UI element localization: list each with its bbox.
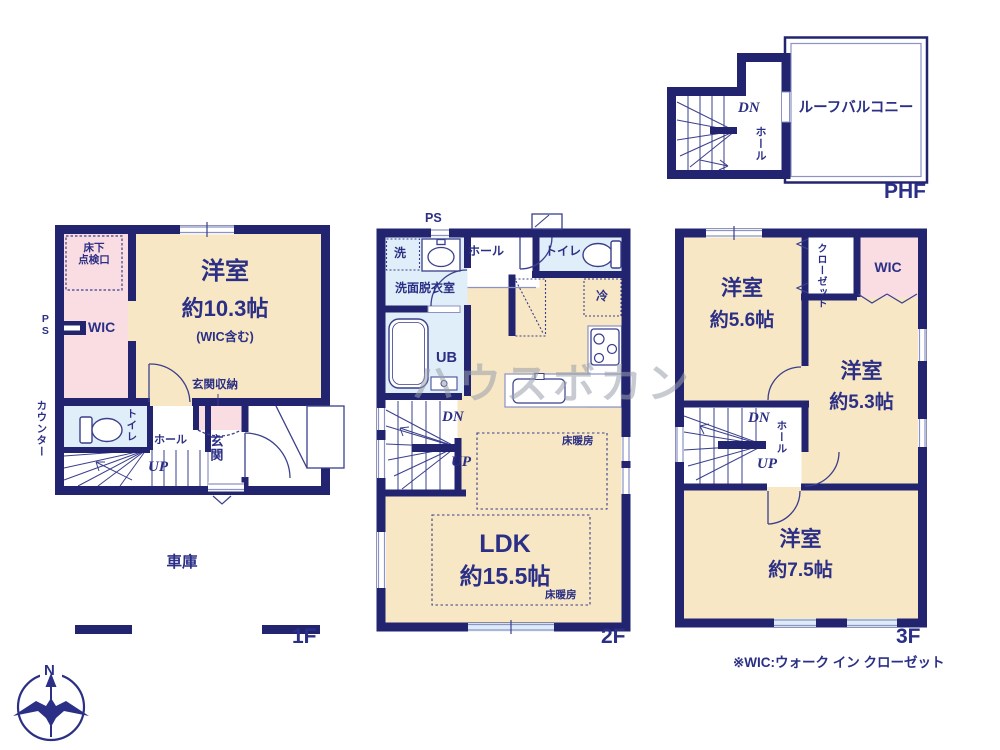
- ub-door: [428, 306, 460, 313]
- f1-bedroom-size: 約10.3帖: [130, 296, 320, 322]
- roof-balcony-label: ルーフバルコニー: [787, 100, 925, 117]
- f1-up-label: UP: [148, 459, 168, 477]
- counter-label: カウンター: [35, 400, 47, 462]
- f2-dn-label: DN: [442, 409, 464, 427]
- entrance-label: 玄関: [208, 434, 223, 484]
- entrance-porch: [307, 406, 344, 468]
- f3-floor-label: 3F: [896, 625, 921, 650]
- f2-hall-label: ホール: [468, 244, 504, 258]
- garage-label: 車庫: [150, 554, 214, 572]
- f1-bedroom-name: 洋室: [130, 258, 320, 286]
- f3-bedroom2-size: 約5.3帖: [805, 392, 918, 414]
- underfloor-hatch-label: 床下 点検口: [68, 242, 120, 267]
- wic-footnote: ※WIC:ウォーク イン クローゼット: [733, 655, 945, 671]
- f3-bedroom3-size: 約7.5帖: [683, 560, 918, 582]
- f1-ps-label: PS: [39, 313, 51, 341]
- floor-heating-label-2: 床暖房: [545, 589, 577, 601]
- f3-dn-label: DN: [748, 410, 770, 428]
- entrance-storage-label: 玄関収納: [192, 379, 238, 393]
- compass-north-label: N: [44, 662, 55, 680]
- floorplan-canvas: DN ホール ルーフバルコニー PHF 床下 点検口 PS WIC 洋室 約10…: [0, 0, 1000, 750]
- phf-floor-label: PHF: [878, 180, 926, 205]
- f1-wic-label: WIC: [88, 319, 115, 336]
- toilet-icon: [80, 417, 122, 443]
- phf-hall-label: ホール: [753, 126, 766, 174]
- f2-toilet-label: トイレ: [545, 244, 581, 258]
- f2-ps-label: PS: [425, 211, 442, 226]
- basin-icon: [422, 239, 460, 271]
- f2-up-label: UP: [451, 454, 471, 472]
- washroom-label: 洗面脱衣室: [382, 281, 468, 295]
- f3-up-label: UP: [757, 456, 777, 474]
- f3-wic-label: WIC: [858, 259, 918, 276]
- phf-dn-label: DN: [738, 100, 760, 118]
- f1-bedroom-note: (WIC含む): [130, 330, 320, 345]
- f1-hall-label: ホール: [154, 434, 187, 447]
- f3-bedroom3-name: 洋室: [683, 528, 918, 553]
- f3-bedroom1-size: 約5.6帖: [685, 310, 799, 332]
- f1-floor-label: 1F: [292, 625, 317, 650]
- fridge-label: 冷: [596, 289, 608, 303]
- f3-bedroom2-name: 洋室: [805, 360, 918, 385]
- closet-label: クローゼット: [813, 243, 828, 279]
- f1-toilet-label: トイレ: [125, 408, 137, 448]
- floor-heating-label-1: 床暖房: [562, 435, 594, 447]
- watermark: ハウスボカン: [412, 350, 694, 411]
- f2-floor-label: 2F: [601, 625, 626, 650]
- f3-bedroom1-name: 洋室: [685, 277, 799, 302]
- ldk-size: 約15.5帖: [400, 563, 610, 590]
- garage-bar-left: [75, 625, 132, 634]
- laundry-label: 洗: [394, 246, 406, 260]
- ldk-name: LDK: [400, 530, 610, 560]
